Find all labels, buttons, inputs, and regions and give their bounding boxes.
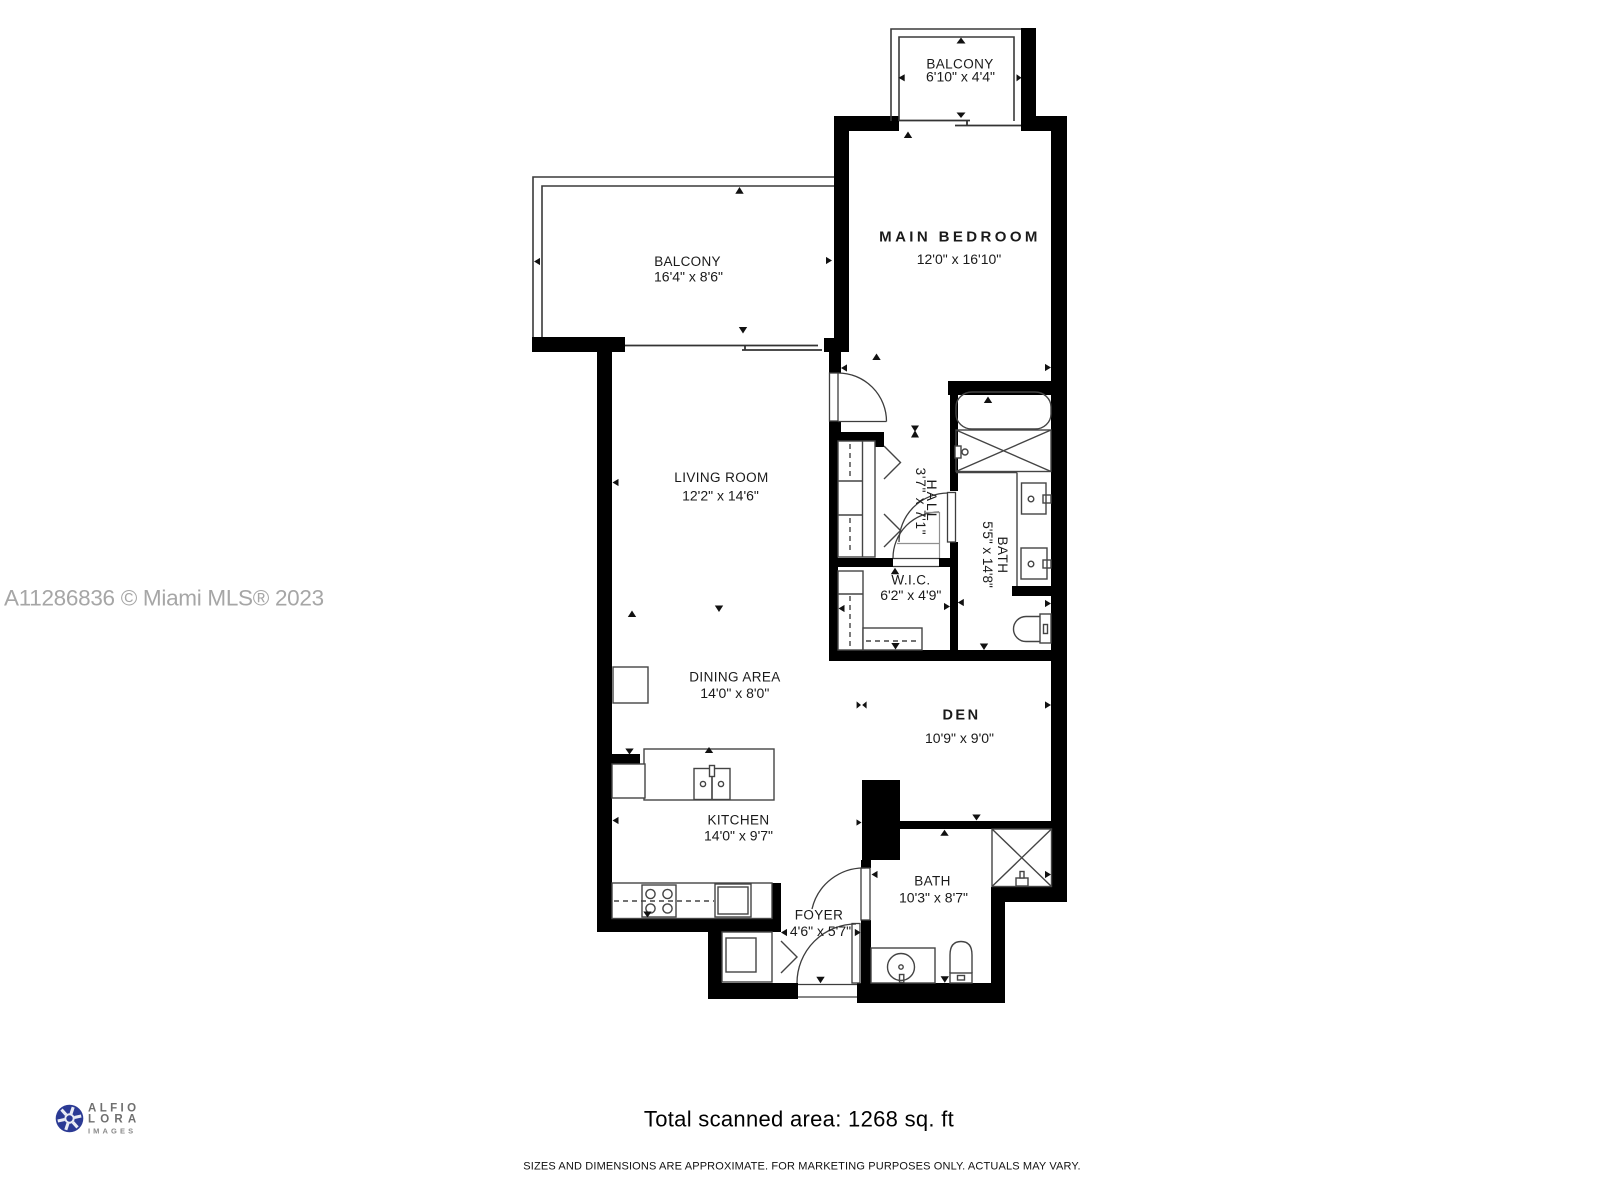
svg-text:MAIN BEDROOM: MAIN BEDROOM bbox=[879, 229, 1041, 246]
svg-text:6'10" x 4'4": 6'10" x 4'4" bbox=[926, 69, 995, 85]
svg-text:BALCONY: BALCONY bbox=[654, 254, 721, 269]
svg-text:12'0" x 16'10": 12'0" x 16'10" bbox=[917, 251, 1002, 267]
svg-text:DINING AREA: DINING AREA bbox=[689, 670, 780, 685]
svg-text:IMAGES: IMAGES bbox=[88, 1127, 136, 1136]
svg-text:BATH: BATH bbox=[995, 536, 1010, 573]
svg-text:10'3" x 8'7": 10'3" x 8'7" bbox=[899, 890, 968, 906]
svg-text:14'0" x 8'0": 14'0" x 8'0" bbox=[700, 685, 769, 701]
svg-text:16'4" x 8'6": 16'4" x 8'6" bbox=[654, 269, 723, 285]
svg-text:12'2" x 14'6": 12'2" x 14'6" bbox=[682, 488, 759, 504]
svg-text:BATH: BATH bbox=[914, 874, 951, 889]
svg-text:14'0" x 9'7": 14'0" x 9'7" bbox=[704, 828, 773, 844]
svg-text:SIZES AND DIMENSIONS ARE APPRO: SIZES AND DIMENSIONS ARE APPROXIMATE. FO… bbox=[523, 1161, 1080, 1173]
svg-text:LIVING ROOM: LIVING ROOM bbox=[674, 470, 768, 485]
svg-text:3'7" x 7'1": 3'7" x 7'1" bbox=[913, 468, 928, 536]
svg-text:FOYER: FOYER bbox=[795, 908, 844, 923]
svg-text:6'2" x 4'9": 6'2" x 4'9" bbox=[880, 587, 941, 603]
svg-text:KITCHEN: KITCHEN bbox=[707, 813, 769, 828]
svg-text:LORA: LORA bbox=[88, 1114, 141, 1126]
svg-text:DEN: DEN bbox=[942, 708, 980, 724]
svg-text:4'6" x 5'7": 4'6" x 5'7" bbox=[790, 923, 851, 939]
svg-text:Total scanned area: 1268 sq. f: Total scanned area: 1268 sq. ft bbox=[644, 1107, 954, 1132]
svg-text:5'5" x 14'8": 5'5" x 14'8" bbox=[980, 521, 995, 588]
svg-text:W.I.C.: W.I.C. bbox=[891, 573, 930, 588]
svg-text:10'9" x 9'0": 10'9" x 9'0" bbox=[925, 730, 994, 746]
svg-text:A11286836 © Miami MLS® 2023: A11286836 © Miami MLS® 2023 bbox=[4, 586, 324, 611]
